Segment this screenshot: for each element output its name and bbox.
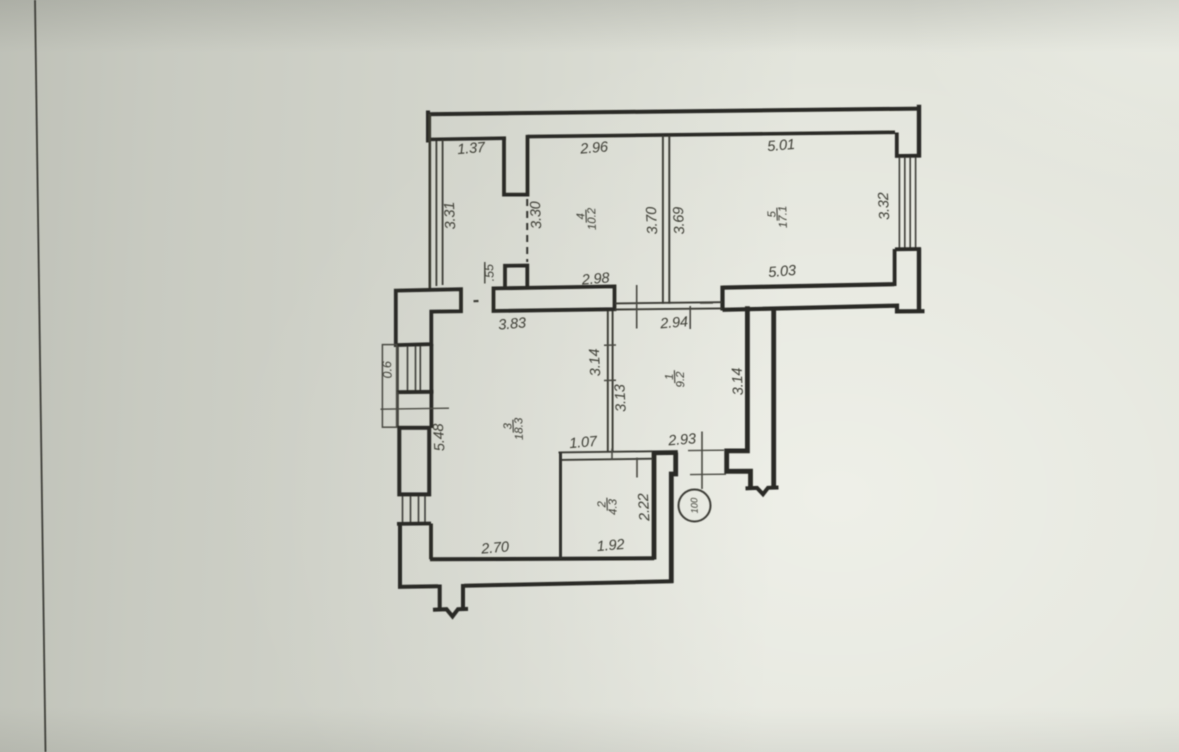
svg-text:1.92: 1.92 xyxy=(596,537,625,555)
svg-text:10.2: 10.2 xyxy=(586,207,599,230)
svg-text:3.13: 3.13 xyxy=(612,384,629,412)
svg-text:3.69: 3.69 xyxy=(671,206,688,234)
svg-text:3.32: 3.32 xyxy=(876,192,893,220)
svg-text:.55: .55 xyxy=(482,264,497,282)
svg-text:5.48: 5.48 xyxy=(431,422,448,451)
svg-text:4.3: 4.3 xyxy=(607,498,620,515)
svg-text:1.07: 1.07 xyxy=(569,434,599,452)
svg-text:9.2: 9.2 xyxy=(675,371,688,388)
svg-text:2.22: 2.22 xyxy=(636,493,653,522)
svg-text:3.70: 3.70 xyxy=(644,206,661,234)
svg-text:5.01: 5.01 xyxy=(767,137,796,155)
svg-text:3.30: 3.30 xyxy=(528,201,545,229)
svg-text:3.83: 3.83 xyxy=(498,315,527,333)
svg-text:2.96: 2.96 xyxy=(579,139,610,157)
svg-text:3.14: 3.14 xyxy=(730,367,747,395)
svg-text:2.98: 2.98 xyxy=(580,270,611,288)
svg-text:2.94: 2.94 xyxy=(659,314,689,332)
svg-text:3.31: 3.31 xyxy=(442,202,459,230)
svg-text:18.3: 18.3 xyxy=(513,417,526,440)
svg-text:1.37: 1.37 xyxy=(457,140,487,158)
svg-text:0.6: 0.6 xyxy=(380,361,395,379)
svg-text:5.03: 5.03 xyxy=(768,263,797,281)
svg-text:100: 100 xyxy=(689,497,701,514)
svg-text:17.1: 17.1 xyxy=(777,206,790,229)
svg-text:2.70: 2.70 xyxy=(480,539,510,557)
svg-text:2.93: 2.93 xyxy=(667,431,697,449)
svg-text:3.14: 3.14 xyxy=(587,348,604,376)
